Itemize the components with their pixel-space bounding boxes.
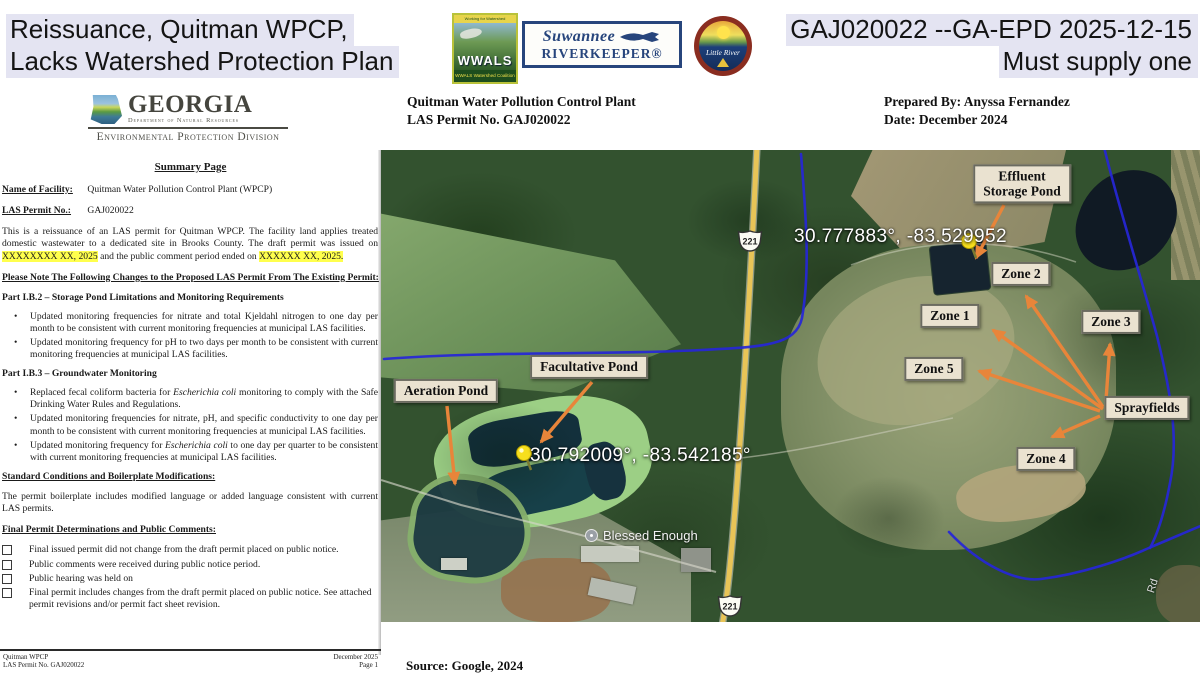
slide-page: Reissuance, Quitman WPCP, Lacks Watershe… xyxy=(0,0,1200,675)
wwals-logo: Working for Watershed Conservation WWALS… xyxy=(452,13,518,84)
permit-label: LAS Permit No.: xyxy=(2,205,71,216)
doc-header-plant: Quitman Water Pollution Control Plant xyxy=(407,93,636,111)
intro-highlight-2: XXXXXX XX, 2025. xyxy=(259,251,343,262)
secondary-road xyxy=(381,480,716,572)
part-ib2-heading: Part I.B.2 – Storage Pond Limitations an… xyxy=(2,292,379,303)
bullet-item: •Updated monitoring frequency for Escher… xyxy=(14,440,378,464)
footer-permit: LAS Permit No. GAJ020022 xyxy=(3,661,84,669)
place-name: Blessed Enough xyxy=(603,528,698,543)
farm-track xyxy=(741,418,953,458)
changes-heading: Please Note The Following Changes to the… xyxy=(2,272,379,283)
facility-value: Quitman Water Pollution Control Plant (W… xyxy=(87,184,272,195)
banner-right-line2: Must supply one xyxy=(999,46,1198,78)
agency-division: Environmental Protection Division xyxy=(88,131,288,143)
satellite-map: 30.777883°, -83.529952 30.792009°, -83.5… xyxy=(381,150,1200,622)
route-221-shield: 221 xyxy=(737,229,763,253)
checkbox xyxy=(2,545,12,555)
checkbox-item: Final issued permit did not change from … xyxy=(2,544,378,556)
map-overlay xyxy=(381,150,1200,622)
agency-name: GEORGIA xyxy=(128,93,252,116)
stream-trace-west xyxy=(384,154,807,359)
map-label-aeration-pond: Aeration Pond xyxy=(394,379,498,403)
facility-label: Name of Facility: xyxy=(2,184,73,195)
bullet-item: •Updated monitoring frequency for pH to … xyxy=(14,337,378,361)
riverkeeper-line1: Suwannee xyxy=(543,28,615,46)
riverkeeper-logo: Suwannee RIVERKEEPER® xyxy=(522,21,682,68)
intro-pre: This is a reissuance of an LAS permit fo… xyxy=(2,226,378,249)
checkbox-item: Final permit includes changes from the d… xyxy=(2,587,378,611)
coordinates-effluent: 30.777883°, -83.529952 xyxy=(794,226,1007,248)
map-label-sprayfields: Sprayfields xyxy=(1104,396,1189,420)
sturgeon-fish-icon xyxy=(619,30,661,44)
banner-right-line1: GAJ020022 --GA-EPD 2025-12-15 xyxy=(786,14,1198,46)
bullet-item: •Replaced fecal coliform bacteria for Es… xyxy=(14,387,378,411)
permit-row: LAS Permit No.: GAJ020022 xyxy=(2,205,379,216)
georgia-state-icon xyxy=(88,95,122,124)
intro-paragraph: This is a reissuance of an LAS permit fo… xyxy=(2,226,378,263)
doc-title: Summary Page xyxy=(0,161,381,173)
stream-trace-east xyxy=(1104,150,1174,548)
place-label: Blessed Enough xyxy=(585,528,698,543)
map-label-zone-3: Zone 3 xyxy=(1081,310,1140,334)
map-label-zone-2: Zone 2 xyxy=(991,262,1050,286)
georgia-epd-logo: GEORGIA Department of Natural Resources … xyxy=(88,93,288,143)
banner-title-line2: Lacks Watershed Protection Plan xyxy=(6,46,399,78)
map-label-facultative-pond: Facultative Pond xyxy=(530,355,648,379)
footer-rule xyxy=(0,649,381,651)
permit-value: GAJ020022 xyxy=(87,205,133,216)
sun-icon xyxy=(717,26,730,39)
wwals-subtitle: WWALS Watershed Coalition xyxy=(454,70,516,82)
bullet-item: •Updated monitoring frequencies for nitr… xyxy=(14,311,378,335)
agency-dept: Department of Natural Resources xyxy=(128,117,252,124)
little-river-name: Little River xyxy=(699,48,747,57)
checkbox-item: Public hearing was held on xyxy=(2,573,378,585)
banner-title: Reissuance, Quitman WPCP, Lacks Watershe… xyxy=(6,14,399,78)
wwals-scene: WWALS xyxy=(454,23,516,70)
doc-header-left: Quitman Water Pollution Control Plant LA… xyxy=(407,93,636,128)
arrow-zone4 xyxy=(1052,416,1100,437)
doc-header-prepared-by: Prepared By: Anyssa Fernandez xyxy=(884,93,1070,111)
coordinates-facultative: 30.792009°, -83.542185° xyxy=(530,445,751,467)
standard-paragraph: The permit boilerplate includes modified… xyxy=(2,491,378,516)
bullet-item: •Updated monitoring frequencies for nitr… xyxy=(14,413,378,437)
doc-footer: Quitman WPCP LAS Permit No. GAJ020022 De… xyxy=(0,649,381,669)
arrow-facultative xyxy=(541,382,592,442)
checkbox xyxy=(2,560,12,570)
footer-facility: Quitman WPCP xyxy=(3,653,84,661)
fish-icon xyxy=(459,27,482,40)
highway-221 xyxy=(722,150,757,622)
riverkeeper-line2: RIVERKEEPER® xyxy=(541,46,662,62)
route-221-shield: 221 xyxy=(717,594,743,618)
map-label-zone-4: Zone 4 xyxy=(1016,447,1075,471)
place-pin-icon xyxy=(585,529,598,542)
checkbox xyxy=(2,588,12,598)
standard-heading: Standard Conditions and Boilerplate Modi… xyxy=(2,471,379,482)
footer-page: Page 1 xyxy=(333,661,378,669)
checkbox xyxy=(2,574,12,584)
intro-mid: and the public comment period ended on xyxy=(98,251,259,262)
map-label-zone-5: Zone 5 xyxy=(904,357,963,381)
little-river-logo: Little River xyxy=(694,16,752,76)
map-label-effluent-storage-pond: Effluent Storage Pond xyxy=(973,164,1071,203)
wwals-name: WWALS xyxy=(454,53,516,68)
map-label-zone-1: Zone 1 xyxy=(920,304,979,328)
footer-date: December 2025 xyxy=(333,653,378,661)
arrow-zone1 xyxy=(993,330,1103,409)
summary-page-document: Summary Page Name of Facility: Quitman W… xyxy=(0,161,381,613)
arrow-aeration xyxy=(447,406,455,484)
doc-header-permit: LAS Permit No. GAJ020022 xyxy=(407,111,636,129)
paddle-icon xyxy=(717,58,729,67)
banner-title-line1: Reissuance, Quitman WPCP, xyxy=(6,14,354,46)
checkbox-item: Public comments were received during pub… xyxy=(2,559,378,571)
intro-highlight-1: XXXXXXXX XX, 2025 xyxy=(2,251,98,262)
doc-header-date: Date: December 2024 xyxy=(884,111,1070,129)
wwals-top-text: Working for Watershed Conservation xyxy=(454,15,516,23)
final-heading: Final Permit Determinations and Public C… xyxy=(2,524,379,535)
arrow-zone3 xyxy=(1106,344,1110,400)
facility-row: Name of Facility: Quitman Water Pollutio… xyxy=(2,184,379,195)
svg-text:221: 221 xyxy=(722,602,737,612)
svg-text:221: 221 xyxy=(742,237,757,247)
doc-header-right: Prepared By: Anyssa Fernandez Date: Dece… xyxy=(884,93,1070,128)
stream-trace-south xyxy=(949,525,1200,579)
part-ib3-heading: Part I.B.3 – Groundwater Monitoring xyxy=(2,368,379,379)
banner-right: GAJ020022 --GA-EPD 2025-12-15 Must suppl… xyxy=(786,14,1198,78)
source-caption: Source: Google, 2024 xyxy=(406,658,523,674)
